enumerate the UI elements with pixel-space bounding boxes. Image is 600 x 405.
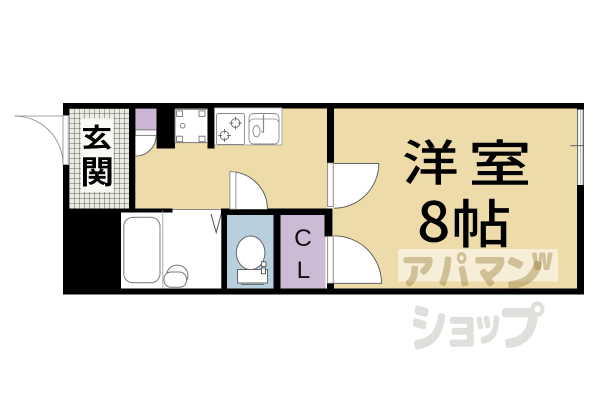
svg-text:L: L <box>297 257 311 284</box>
svg-text:C: C <box>294 225 312 252</box>
